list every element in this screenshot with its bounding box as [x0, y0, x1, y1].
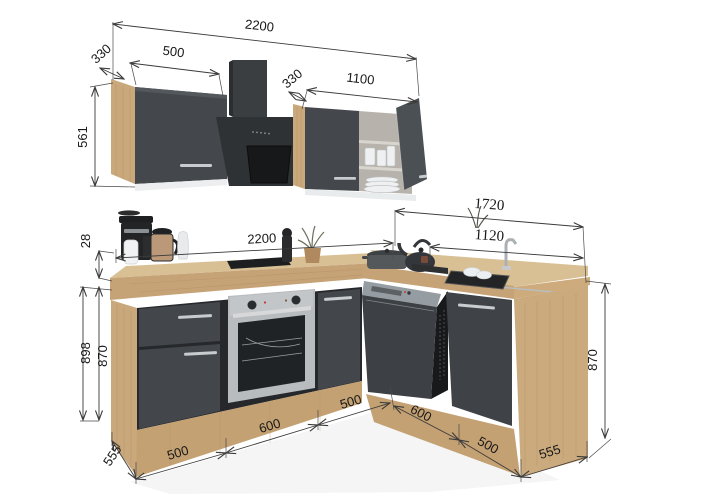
dim-line-wall-left-width [130, 63, 219, 74]
milk-bottle [124, 240, 138, 264]
oven-door-glass [238, 315, 305, 392]
dishwasher [362, 281, 448, 399]
hood-chimney-side [229, 60, 233, 117]
hood-chimney [233, 60, 267, 117]
dishes-plates [364, 177, 400, 193]
dim-label-left-cabinet-height: 870 [95, 345, 110, 367]
faucet-base [502, 266, 511, 270]
dim-label-total-height: 898 [78, 342, 93, 364]
dim-label-right-cabinet-height: 870 [585, 349, 600, 371]
diagram-canvas: 2200 330 500 561 330 1100 28 2200 1720 1… [0, 0, 703, 497]
wall-cabinet-right-side-panel [293, 104, 305, 189]
sink-cabinet-door [446, 292, 512, 426]
built-in-oven [228, 289, 315, 403]
dim-label-wall-height: 561 [75, 126, 90, 148]
oven-indicator-light-2 [285, 299, 287, 301]
dim-label-wall-left-width: 500 [162, 43, 185, 61]
pepper-grinder [282, 228, 292, 262]
wall-cabinet-left-handle [180, 164, 212, 167]
kitchen-dimension-diagram: 2200 330 500 561 330 1100 28 2200 1720 1… [0, 0, 703, 497]
oven-indicator-light [264, 301, 266, 303]
dishwasher-knob [407, 291, 410, 294]
dishwasher-door [362, 295, 437, 399]
wall-cabinet-right-handle [334, 177, 356, 180]
wall-plate-decor [118, 210, 140, 215]
dim-label-wall-right-depth: 330 [279, 66, 305, 91]
base-unit-drawer-cabinet [139, 302, 220, 429]
spice-box [421, 256, 428, 263]
wall-cabinet-run [111, 60, 427, 201]
hood-glass-panel [247, 146, 291, 183]
oven-knob-right [292, 296, 301, 305]
dim-line-wall-right-width [307, 90, 417, 102]
dim-line-wall-left-depth [100, 68, 124, 79]
dim-label-wall-left-depth: 330 [88, 41, 114, 67]
dim-line-wall-right-depth [289, 92, 306, 101]
oven-knob-left [248, 301, 257, 310]
corner-door-front [318, 289, 360, 390]
drawer-front [139, 302, 220, 347]
dim-label-wall-total: 2200 [244, 16, 274, 34]
dim-label-worktop-thickness: 28 [78, 234, 93, 248]
dim-line-right-run-total [395, 211, 583, 227]
dishwasher-light [404, 291, 406, 293]
wall-cabinet-left-door [135, 87, 227, 184]
dim-label-base-front-width: 2200 [247, 230, 277, 246]
dim-label-right-run-total: 1720 [474, 196, 505, 214]
base-unit-corner-door [318, 289, 360, 390]
sink-base-cabinet [446, 292, 512, 426]
dim-label-wall-right-width: 1100 [346, 70, 375, 88]
dim-label-right-run-counter: 1120 [474, 227, 504, 245]
